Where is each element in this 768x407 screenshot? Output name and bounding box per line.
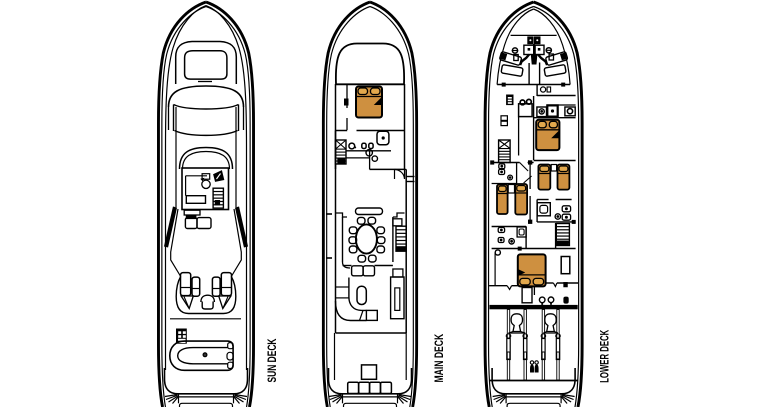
svg-text:LOWER DECK: LOWER DECK (600, 329, 612, 382)
svg-text:MAIN DECK: MAIN DECK (434, 333, 446, 382)
svg-text:SUN DECK: SUN DECK (267, 338, 279, 383)
